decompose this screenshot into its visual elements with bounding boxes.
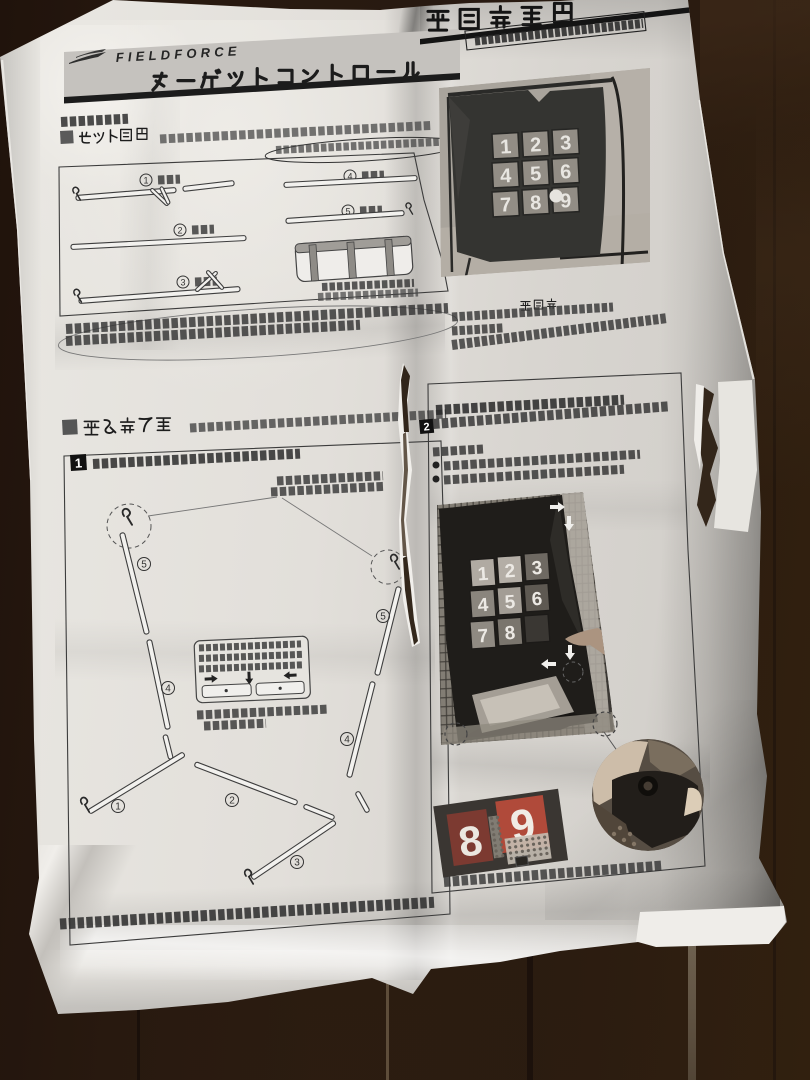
svg-text:2: 2 xyxy=(530,134,542,157)
svg-text:2: 2 xyxy=(229,796,235,807)
svg-text:3: 3 xyxy=(180,277,185,287)
svg-text:1: 1 xyxy=(500,136,512,159)
svg-text:3: 3 xyxy=(294,858,300,869)
svg-text:2: 2 xyxy=(177,225,182,235)
svg-text:4: 4 xyxy=(500,165,513,188)
svg-text:4: 4 xyxy=(344,735,350,746)
svg-text:7: 7 xyxy=(477,626,489,648)
svg-text:3: 3 xyxy=(560,132,572,155)
svg-text:5: 5 xyxy=(141,560,147,571)
svg-text:5: 5 xyxy=(380,612,386,623)
svg-text:4: 4 xyxy=(165,684,171,695)
svg-text:6: 6 xyxy=(531,589,543,611)
svg-text:4: 4 xyxy=(477,595,489,617)
svg-text:5: 5 xyxy=(530,163,542,186)
svg-text:8: 8 xyxy=(530,192,542,215)
svg-text:2: 2 xyxy=(504,561,516,583)
svg-text:5: 5 xyxy=(504,592,516,614)
svg-text:2: 2 xyxy=(423,421,430,433)
svg-text:1: 1 xyxy=(115,802,121,813)
svg-text:3: 3 xyxy=(531,558,543,580)
svg-text:1: 1 xyxy=(477,564,489,586)
svg-text:8: 8 xyxy=(504,623,516,645)
svg-text:1: 1 xyxy=(143,175,148,185)
svg-text:7: 7 xyxy=(500,194,512,217)
svg-text:1: 1 xyxy=(74,455,82,470)
svg-text:6: 6 xyxy=(560,161,572,184)
